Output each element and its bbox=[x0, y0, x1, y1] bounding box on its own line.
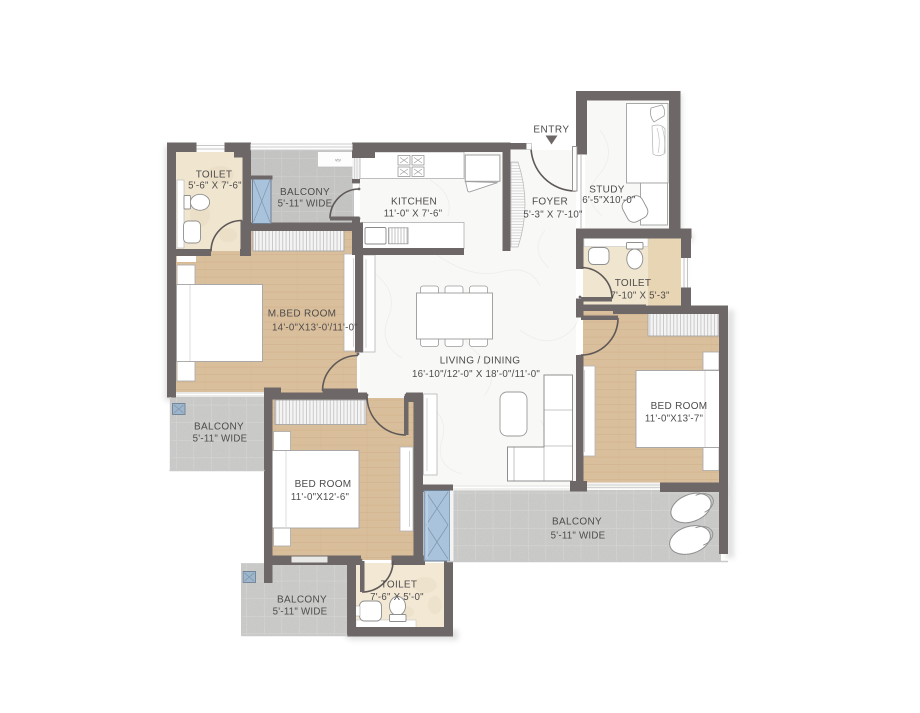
svg-text:KITCHEN: KITCHEN bbox=[391, 197, 437, 208]
svg-text:TOILET: TOILET bbox=[196, 170, 233, 181]
svg-text:7'-6" X 5'-0": 7'-6" X 5'-0" bbox=[370, 592, 424, 603]
svg-text:14'-0"X13'-0'/11'-0": 14'-0"X13'-0'/11'-0" bbox=[272, 323, 358, 334]
svg-text:BALCONY: BALCONY bbox=[194, 422, 244, 433]
svg-text:FOYER: FOYER bbox=[532, 197, 568, 208]
svg-text:vtv: vtv bbox=[335, 158, 342, 163]
svg-text:BED ROOM: BED ROOM bbox=[295, 479, 352, 490]
svg-text:5'-6" X 7'-6": 5'-6" X 7'-6" bbox=[188, 181, 242, 192]
svg-text:M.BED ROOM: M.BED ROOM bbox=[268, 309, 337, 320]
svg-text:5'-3" X 7'-10": 5'-3" X 7'-10" bbox=[523, 210, 583, 221]
svg-text:ENTRY: ENTRY bbox=[533, 125, 569, 136]
svg-text:BALCONY: BALCONY bbox=[552, 517, 602, 528]
svg-text:11'-0"X13'-7": 11'-0"X13'-7" bbox=[645, 414, 704, 425]
svg-text:STUDY: STUDY bbox=[589, 185, 624, 196]
svg-text:LIVING / DINING: LIVING / DINING bbox=[440, 356, 521, 367]
svg-text:5'-11" WIDE: 5'-11" WIDE bbox=[278, 199, 333, 210]
svg-text:TOILET: TOILET bbox=[615, 278, 652, 289]
svg-text:5'-11" WIDE: 5'-11" WIDE bbox=[551, 531, 606, 542]
svg-text:7'-10" X 5'-3": 7'-10" X 5'-3" bbox=[610, 291, 670, 302]
svg-text:11'-0"X12'-6": 11'-0"X12'-6" bbox=[291, 492, 350, 503]
svg-text:BED ROOM: BED ROOM bbox=[651, 401, 708, 412]
svg-text:BALCONY: BALCONY bbox=[280, 187, 330, 198]
svg-text:16'-10"/12'-0" X 18'-0"/11'-0": 16'-10"/12'-0" X 18'-0"/11'-0" bbox=[412, 369, 540, 380]
svg-text:5'-11" WIDE: 5'-11" WIDE bbox=[193, 434, 248, 445]
svg-text:5'-11" WIDE: 5'-11" WIDE bbox=[273, 607, 328, 618]
svg-text:11'-0" X 7'-6": 11'-0" X 7'-6" bbox=[384, 209, 443, 220]
svg-text:TOILET: TOILET bbox=[381, 580, 418, 591]
svg-text:6'-5"X10'-0": 6'-5"X10'-0" bbox=[582, 195, 636, 206]
svg-text:BALCONY: BALCONY bbox=[277, 595, 327, 606]
